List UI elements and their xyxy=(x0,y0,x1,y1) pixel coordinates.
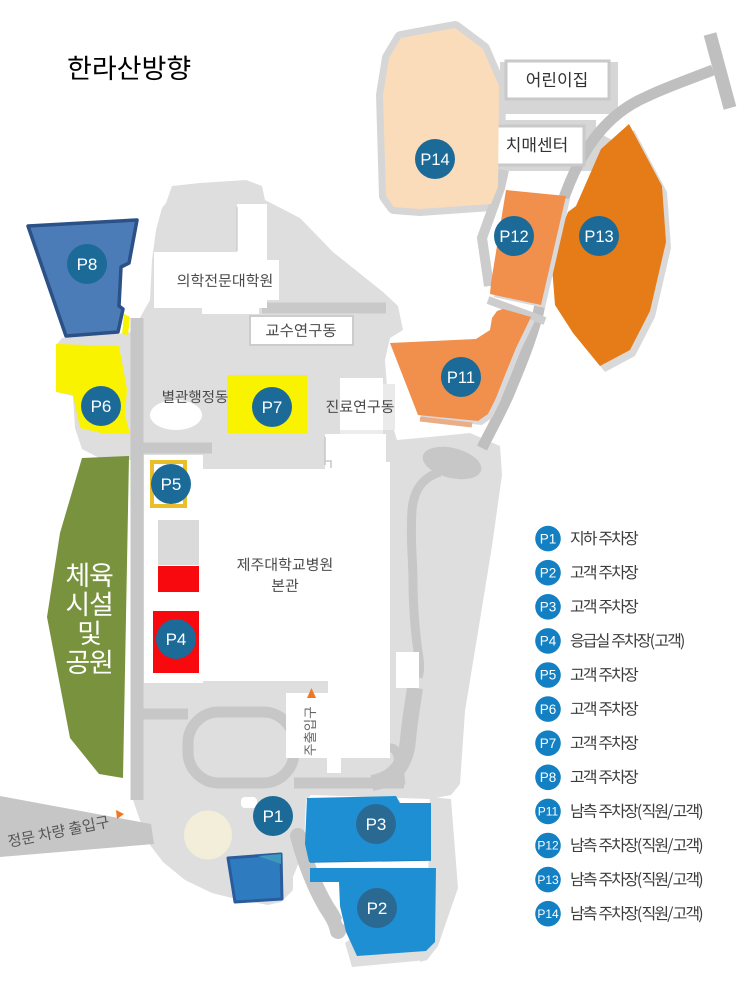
svg-text:P3: P3 xyxy=(366,815,387,834)
svg-text:P4: P4 xyxy=(166,630,187,649)
svg-text:P6: P6 xyxy=(91,397,112,416)
svg-text:P13: P13 xyxy=(584,228,613,246)
svg-text:P5: P5 xyxy=(161,475,182,494)
svg-text:P2: P2 xyxy=(367,899,388,918)
svg-text:P11: P11 xyxy=(538,805,559,819)
svg-text:P8: P8 xyxy=(540,770,557,785)
svg-text:P13: P13 xyxy=(537,873,559,887)
svg-text:P6: P6 xyxy=(540,702,557,717)
svg-text:P5: P5 xyxy=(540,668,557,683)
svg-text:P14: P14 xyxy=(537,907,559,921)
svg-text:P3: P3 xyxy=(540,600,557,615)
svg-text:P12: P12 xyxy=(537,839,559,853)
svg-text:P1: P1 xyxy=(540,531,557,546)
svg-text:P8: P8 xyxy=(77,255,98,274)
svg-text:P2: P2 xyxy=(540,565,557,580)
svg-text:P14: P14 xyxy=(420,151,449,169)
svg-text:P1: P1 xyxy=(263,807,284,826)
svg-text:P7: P7 xyxy=(540,736,557,751)
svg-text:P12: P12 xyxy=(499,228,528,246)
svg-text:P4: P4 xyxy=(540,634,557,649)
svg-text:P11: P11 xyxy=(447,369,475,387)
svg-text:P7: P7 xyxy=(262,398,283,417)
